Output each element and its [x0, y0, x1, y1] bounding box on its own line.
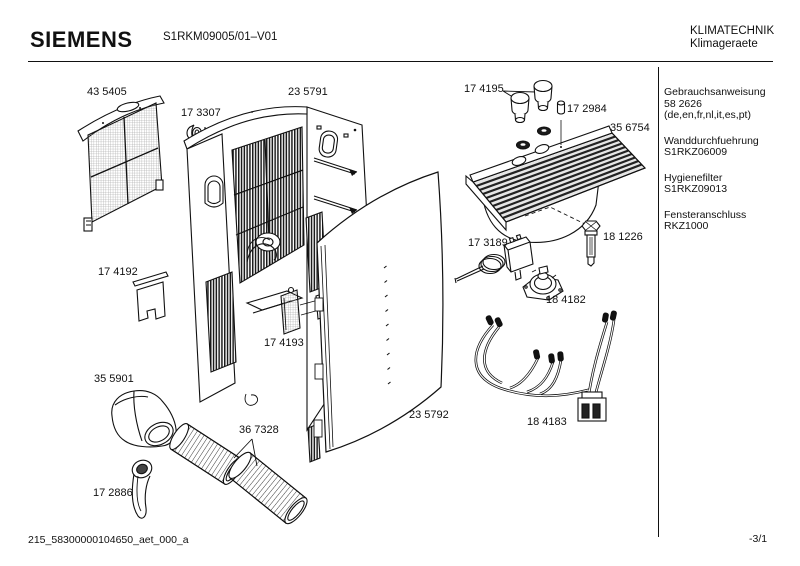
part-label-strap: 17 2886	[93, 487, 133, 499]
part-label-cable-harness: 18 4183	[527, 416, 567, 428]
exhaust-hoses-drawing	[166, 421, 310, 527]
cable-harness-drawing	[476, 311, 617, 421]
part-label-air-duct-elbow: 35 5901	[94, 373, 134, 385]
air-duct-elbow-drawing	[112, 391, 177, 451]
part-label-housing-rear: 23 5791	[288, 86, 328, 98]
sensor-drawing	[582, 221, 600, 266]
part-label-intake-filter-grille: 43 5405	[87, 86, 127, 98]
part-label-rotary-switch: 18 4182	[546, 294, 586, 306]
push-button-drawing	[558, 101, 565, 148]
part-label-filter-insert: 17 4193	[264, 337, 304, 349]
part-label-thermostat: 17 3189	[468, 237, 508, 249]
exploded-view-diagram: 43 540517 330723 579117 419517 298435 67…	[0, 0, 800, 566]
top-cover-drawing	[466, 126, 645, 242]
part-label-small-knob: 17 3307	[181, 107, 221, 119]
part-label-push-button: 17 2984	[567, 103, 607, 115]
part-label-flap: 17 4192	[98, 266, 138, 278]
part-label-top-cover: 35 6754	[610, 122, 650, 134]
intake-filter-grille-drawing	[78, 96, 164, 231]
part-label-exhaust-hoses: 36 7328	[239, 424, 279, 436]
strap-drawing	[129, 457, 154, 518]
control-knobs-drawing	[503, 81, 565, 150]
parts-diagram-page: SIEMENS S1RKM09005/01–V01 KLIMATECHNIK K…	[0, 0, 800, 566]
exploded-view-art	[0, 0, 800, 566]
part-label-sensor: 18 1226	[603, 231, 643, 243]
part-label-front-panel: 23 5792	[409, 409, 449, 421]
part-label-control-knobs: 17 4195	[464, 83, 504, 95]
flap-drawing	[133, 272, 168, 321]
